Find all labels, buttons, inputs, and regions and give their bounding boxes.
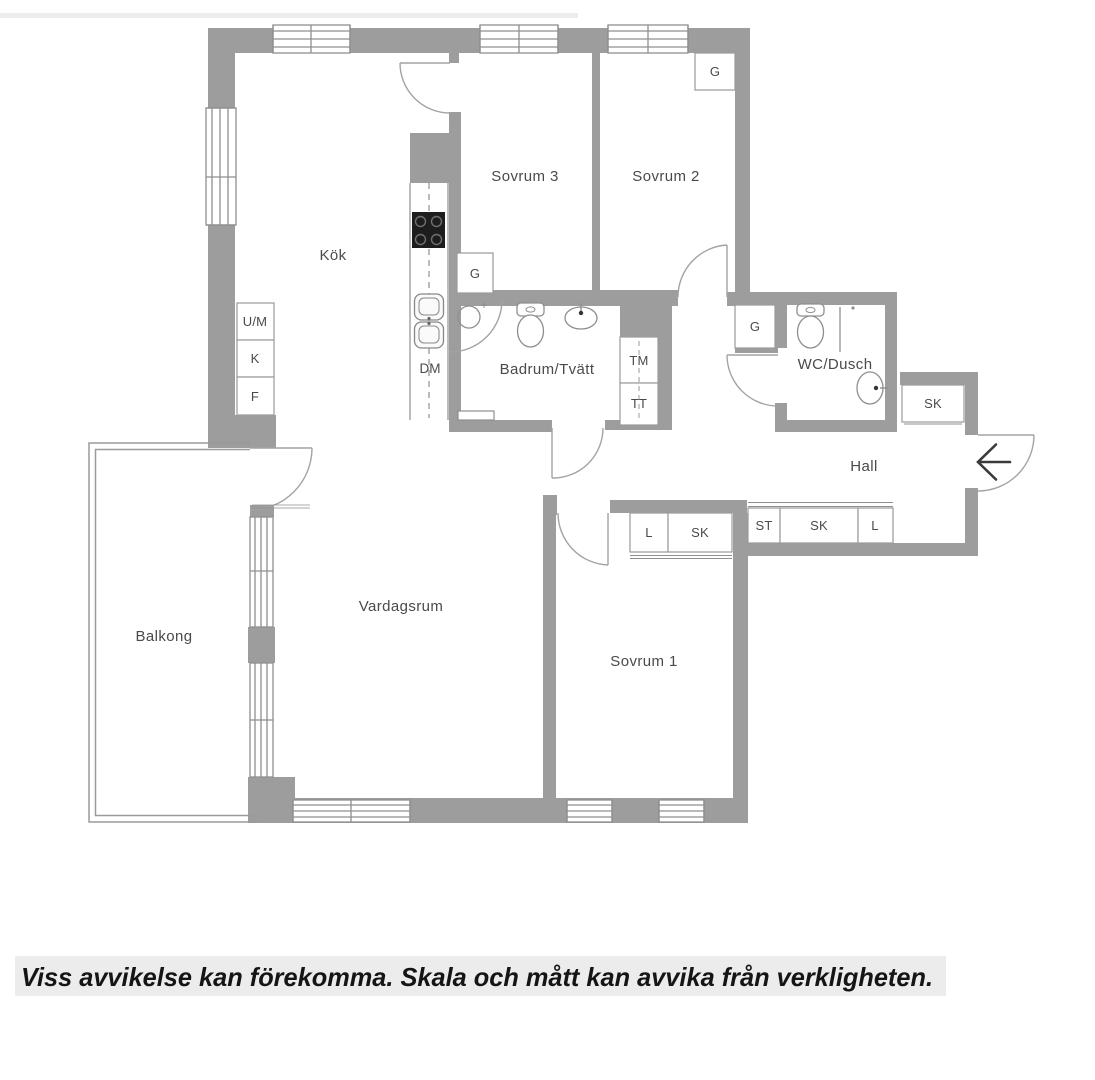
label-tm: TM (629, 353, 648, 368)
window-balkong-lower (250, 663, 273, 777)
label-g-sovrum2: G (710, 64, 720, 79)
stove-icon (412, 212, 445, 248)
door-wc (727, 355, 778, 406)
room-label-vardagsrum: Vardagsrum (359, 598, 444, 615)
label-f: F (251, 389, 259, 404)
label-l-sovrum1: L (645, 525, 652, 540)
badrum-radiator (458, 411, 494, 420)
label-um: U/M (243, 314, 267, 329)
label-g-sovrum3: G (470, 266, 480, 281)
window-sovrum2 (608, 25, 688, 53)
window-vardagsrum (293, 800, 410, 822)
wc-toilet-icon (797, 304, 824, 348)
window-balkong-upper (250, 517, 273, 627)
door-sovrum1 (558, 513, 608, 565)
badrum-sink-icon (565, 303, 597, 329)
disclaimer: Viss avvikelse kan förekomma. Skala och … (15, 956, 946, 996)
label-dm: DM (420, 361, 441, 376)
room-label-sovrum1: Sovrum 1 (610, 653, 677, 670)
label-k: K (251, 351, 260, 366)
room-label-kok: Kök (319, 247, 346, 264)
wc-shower-partition (840, 306, 855, 352)
label-g-wc: G (750, 319, 760, 334)
door-sovrum2 (678, 245, 727, 297)
badrum-toilet-icon (517, 303, 544, 347)
room-label-badrum: Badrum/Tvätt (500, 361, 595, 378)
room-label-sovrum2: Sovrum 2 (632, 168, 699, 185)
label-st: ST (755, 518, 772, 533)
disclaimer-text: Viss avvikelse kan förekomma. Skala och … (21, 962, 933, 992)
label-sk-sovrum1: SK (691, 525, 709, 540)
window-sovrum3 (480, 25, 558, 53)
floorplan-page: Kök Sovrum 3 Sovrum 2 Badrum/Tvätt WC/Du… (0, 0, 1095, 1080)
label-l-hall: L (871, 518, 878, 533)
window-sovrum1-a (567, 800, 612, 822)
room-label-balkong: Balkong (135, 628, 192, 645)
floorplan-drawing: Kök Sovrum 3 Sovrum 2 Badrum/Tvätt WC/Du… (0, 0, 1095, 1080)
door-kok (400, 63, 450, 113)
label-sk-hall-top: SK (924, 396, 942, 411)
window-kitchen-top (273, 25, 350, 53)
top-edge-strip (0, 13, 578, 18)
label-sk-hall: SK (810, 518, 828, 533)
walls (208, 28, 978, 823)
label-tt: TT (631, 396, 647, 411)
room-label-wc: WC/Dusch (798, 356, 873, 373)
window-sovrum1-b (659, 800, 704, 822)
wc-sink-icon (857, 372, 888, 404)
door-badrum (552, 428, 603, 478)
door-balkong (250, 448, 312, 510)
room-label-sovrum3: Sovrum 3 (491, 168, 558, 185)
window-kitchen-left (206, 108, 236, 225)
room-label-hall: Hall (850, 458, 877, 475)
entrance-arrow-icon (978, 445, 1010, 480)
